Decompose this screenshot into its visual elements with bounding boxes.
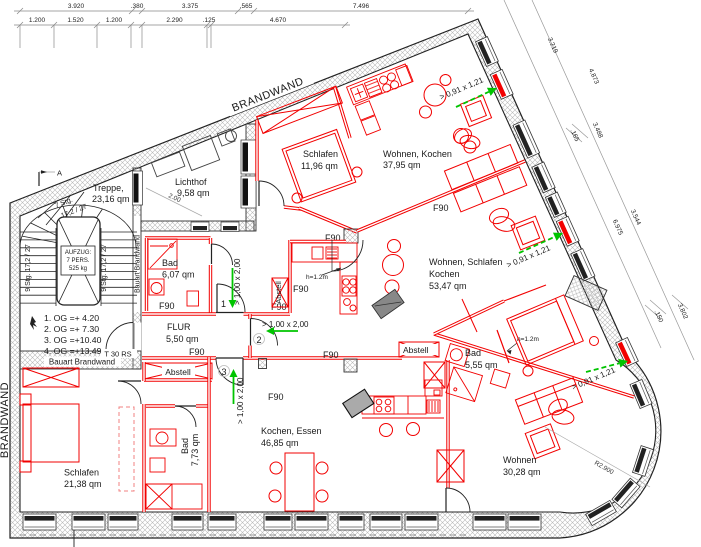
svg-text:7 PERS.: 7 PERS. [66, 258, 89, 264]
svg-text:> 1,00 x 2,00: > 1,00 x 2,00 [236, 377, 245, 424]
svg-text:2: 2 [257, 335, 262, 345]
svg-text:46,85 qm: 46,85 qm [261, 438, 299, 448]
svg-text:21,38 qm: 21,38 qm [64, 479, 102, 489]
svg-text:11,96 qm: 11,96 qm [301, 161, 338, 171]
svg-text:F90: F90 [189, 347, 205, 357]
svg-text:5,50 qm: 5,50 qm [166, 334, 199, 344]
svg-text:F90: F90 [293, 284, 309, 294]
svg-text:h=1.2m: h=1.2m [517, 336, 539, 343]
svg-text:Treppe,: Treppe, [93, 183, 124, 193]
svg-text:30,28 qm: 30,28 qm [503, 467, 541, 477]
svg-text:BRANDWAND: BRANDWAND [0, 382, 11, 458]
svg-text:> 1,00 x 2,00: > 1,00 x 2,00 [262, 320, 309, 329]
svg-text:Bad: Bad [162, 258, 178, 268]
svg-text:4.670: 4.670 [270, 17, 287, 24]
svg-text:1. OG =+ 4.20: 1. OG =+ 4.20 [44, 313, 99, 323]
svg-text:.380: .380 [131, 3, 144, 10]
svg-text:Bad: Bad [465, 348, 481, 358]
svg-text:9 Stg. 17,2 / 27: 9 Stg. 17,2 / 27 [25, 244, 32, 292]
svg-text:53,47 qm: 53,47 qm [429, 281, 467, 291]
svg-text:37,95 qm: 37,95 qm [383, 160, 421, 170]
svg-text:3.920: 3.920 [68, 3, 85, 10]
svg-text:Wohnen, Kochen: Wohnen, Kochen [383, 149, 452, 159]
svg-text:Schlafen: Schlafen [64, 468, 99, 478]
svg-text:6,07 qm: 6,07 qm [162, 270, 195, 280]
svg-text:1: 1 [221, 299, 226, 309]
svg-text:.565: .565 [240, 3, 253, 10]
svg-text:9 Stg. 17,2 / 27: 9 Stg. 17,2 / 27 [101, 244, 108, 292]
svg-text:23,16 qm: 23,16 qm [92, 194, 130, 204]
svg-text:Lichthof: Lichthof [175, 177, 207, 187]
svg-text:.125: .125 [203, 17, 216, 24]
svg-text:FLUR: FLUR [167, 322, 191, 332]
svg-text:Abstell: Abstell [403, 345, 429, 355]
svg-text:Abstell: Abstell [274, 281, 283, 304]
svg-text:Kochen: Kochen [429, 269, 460, 279]
svg-text:F90: F90 [323, 350, 339, 360]
svg-text:9,58 qm: 9,58 qm [177, 188, 210, 198]
svg-text:525 kg: 525 kg [69, 266, 87, 272]
svg-text:F90: F90 [159, 301, 175, 311]
svg-text:> 1,00 x 2,00: > 1,00 x 2,00 [233, 258, 242, 305]
svg-text:F90: F90 [433, 203, 449, 213]
svg-text:Bad: Bad [180, 438, 190, 454]
svg-text:T 30 RS: T 30 RS [104, 350, 131, 359]
svg-text:AUFZUG:: AUFZUG: [65, 250, 92, 256]
svg-text:h=1.2m: h=1.2m [306, 274, 328, 281]
svg-text:Wohnen: Wohnen [503, 455, 536, 465]
svg-text:1.520: 1.520 [67, 17, 84, 24]
svg-text:7,73 qm: 7,73 qm [190, 434, 200, 467]
svg-text:2.290: 2.290 [166, 17, 183, 24]
svg-text:Abstell: Abstell [165, 367, 191, 377]
svg-text:3. OG =+10.40: 3. OG =+10.40 [44, 335, 102, 345]
svg-text:3: 3 [222, 367, 227, 377]
svg-text:2. OG =+ 7.30: 2. OG =+ 7.30 [44, 324, 99, 334]
svg-text:1.200: 1.200 [106, 17, 123, 24]
svg-text:Schlafen: Schlafen [303, 149, 338, 159]
svg-text:F90: F90 [268, 392, 284, 402]
svg-text:A: A [57, 169, 62, 178]
svg-text:Bauart Brandwand: Bauart Brandwand [49, 358, 115, 367]
svg-text:Kochen, Essen: Kochen, Essen [261, 426, 322, 436]
svg-text:7.496: 7.496 [353, 3, 370, 10]
svg-text:1.200: 1.200 [29, 17, 46, 24]
svg-text:4. OG =+13.49: 4. OG =+13.49 [44, 346, 102, 356]
svg-text:Wohnen, Schlafen: Wohnen, Schlafen [429, 257, 502, 267]
svg-text:3.375: 3.375 [182, 3, 199, 10]
svg-text:5,55 qm: 5,55 qm [465, 360, 498, 370]
